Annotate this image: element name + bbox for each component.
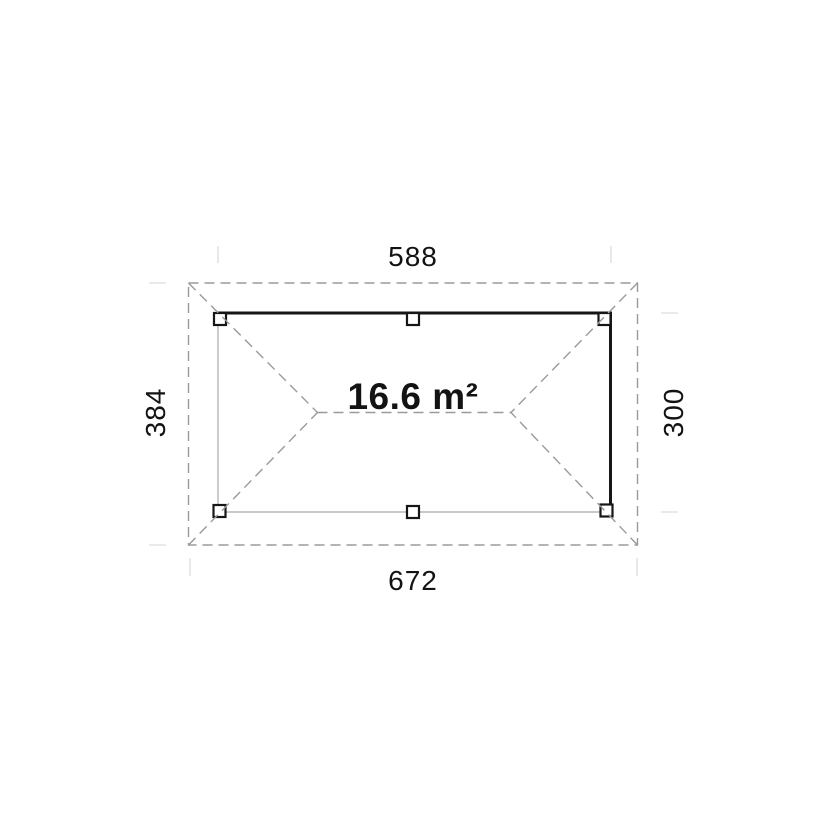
hip-line-top-left (189, 283, 318, 413)
post-top-right (599, 313, 611, 325)
post-top-middle (407, 313, 419, 325)
hip-line-bottom-left (189, 413, 318, 546)
hip-line-top-right (511, 283, 638, 413)
dimension-label-bottom: 672 (388, 565, 438, 596)
dimension-label-top: 588 (388, 241, 438, 272)
dimension-label-left: 384 (140, 388, 171, 438)
dimension-label-right: 300 (658, 388, 689, 438)
hip-line-bottom-right (511, 413, 638, 546)
post-bottom-left (214, 505, 226, 517)
floor-plan-page: 16.6 m² 588 672 384 300 (0, 0, 828, 828)
floor-plan-drawing: 16.6 m² 588 672 384 300 (0, 0, 828, 828)
post-bottom-middle (407, 506, 419, 518)
post-bottom-right (601, 505, 613, 517)
area-label: 16.6 m² (347, 376, 478, 417)
